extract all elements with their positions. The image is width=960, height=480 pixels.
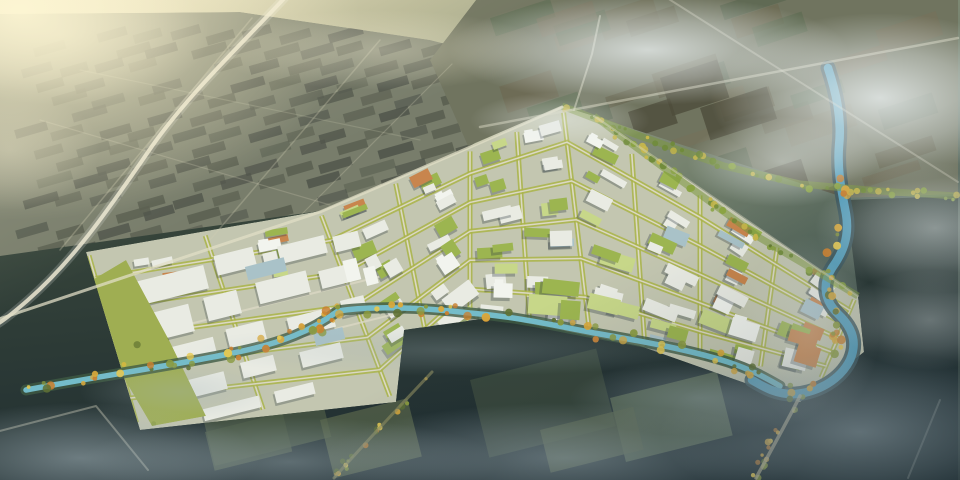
aerial-masterplan-rendering [0,0,960,480]
color-grade-vignette [0,0,960,480]
rendering-canvas [0,0,960,480]
